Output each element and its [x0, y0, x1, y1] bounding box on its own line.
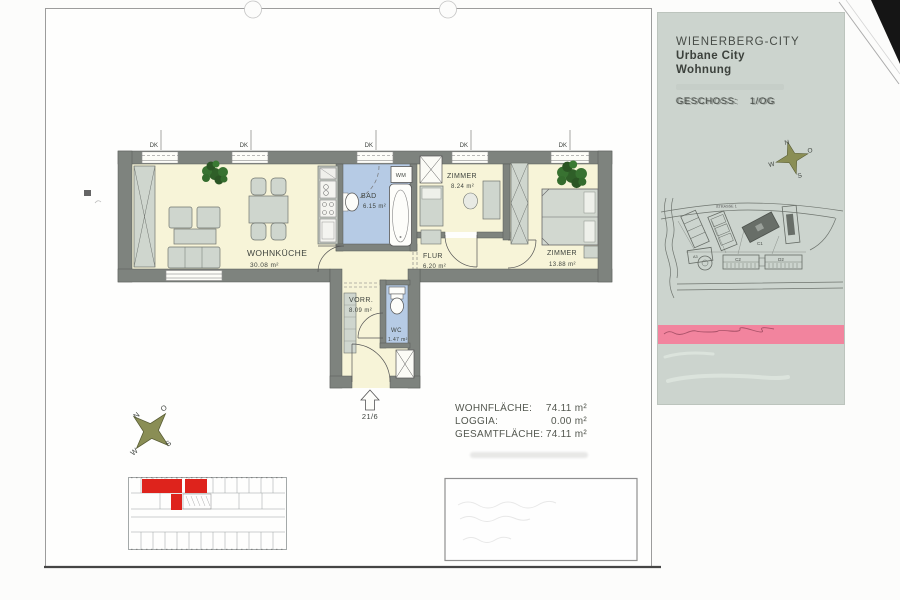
room-area-vorraum: 8.09 m²	[349, 308, 372, 314]
site-compass: N O S W	[768, 138, 813, 180]
floor-line: GESCHOSS:1/OG	[676, 96, 836, 107]
building-connector	[759, 258, 765, 266]
building-c1	[742, 212, 779, 243]
floor-plan: DK DK DK DK DK	[84, 130, 612, 421]
panel-header: WIENERBERG-CITY Urbane City Wohnung GESC…	[676, 36, 836, 107]
scan-artifact	[84, 190, 91, 196]
area-value: 74.11 m²	[546, 402, 587, 415]
room-label-wc: WC	[391, 328, 402, 334]
room-area-flur: 6.20 m²	[423, 264, 446, 270]
scan-artifact	[95, 201, 101, 203]
area-label: LOGGIA:	[455, 415, 498, 428]
area-row: WOHNFLÄCHE: 74.11 m²	[455, 402, 587, 415]
compass-w: W	[768, 161, 776, 169]
faded-print-line	[676, 84, 784, 90]
building-label-d2: D2	[778, 257, 784, 262]
area-value: 74.11 m²	[546, 428, 587, 441]
notes-box	[445, 479, 637, 561]
building-b1	[708, 211, 737, 251]
room-area-zimmer1: 8.24 m²	[451, 184, 474, 190]
corner-fold	[839, 0, 900, 84]
ghost-marks	[665, 353, 788, 381]
entrance-arrow-icon	[361, 390, 379, 410]
room-area-wc: 1.47 m²	[388, 337, 408, 343]
room-label-vorraum: VORR.	[349, 297, 373, 304]
window-label: DK	[559, 143, 567, 149]
building-a3	[687, 247, 713, 270]
project-subtitle-1: Urbane City	[676, 50, 836, 62]
building-a1	[681, 210, 709, 248]
area-row: LOGGIA: 0.00 m²	[455, 415, 587, 428]
building-c2	[723, 255, 759, 269]
faded-print-line	[470, 452, 588, 458]
area-row: GESAMTFLÄCHE: 74.11 m²	[455, 428, 587, 441]
room-area-bad: 6.15 m²	[363, 204, 386, 210]
window-label: DK	[365, 143, 373, 149]
street-label: STRASSE 1	[716, 204, 737, 209]
building-d1	[782, 205, 800, 243]
room-label-zimmer2: ZIMMER	[547, 250, 577, 257]
window-label: DK	[240, 143, 248, 149]
key-plan	[129, 478, 287, 550]
project-subtitle-2: Wohnung	[676, 64, 836, 76]
room-label-wm: WM	[396, 173, 407, 179]
window-label: DK	[150, 143, 158, 149]
site-plan: STRASSE 1	[661, 138, 843, 298]
punch-holes	[245, 1, 457, 18]
area-label: WOHNFLÄCHE:	[455, 402, 532, 415]
compass-o: O	[807, 147, 813, 155]
compass-s: S	[164, 438, 174, 448]
floor-value: 1/OG	[750, 96, 775, 107]
area-label: GESAMTFLÄCHE:	[455, 428, 543, 441]
building-label-c2: C2	[735, 257, 741, 262]
room-area-zimmer2: 13.88 m²	[549, 262, 576, 268]
compass-n: N	[784, 139, 790, 147]
room-label-wohnkueche: WOHNKÜCHE	[247, 248, 307, 258]
floor-label: GESCHOSS:	[676, 96, 738, 107]
compass-o: O	[159, 403, 169, 414]
room-area-wohnkueche: 30.08 m²	[250, 262, 279, 269]
project-title: WIENERBERG-CITY	[676, 36, 836, 48]
window-label: DK	[460, 143, 468, 149]
room-label-flur: FLUR	[423, 253, 443, 260]
compass-s: S	[797, 172, 803, 180]
entrance-number: 21/6	[362, 412, 378, 421]
scanned-floorplan-page: { "panel": { "title": "WIENERBERG-CITY",…	[0, 0, 900, 600]
pink-highlight	[658, 325, 844, 344]
room-label-bad: BAD	[361, 193, 377, 200]
kitchen-counter	[318, 166, 338, 244]
compass-rose: N O W S	[119, 399, 182, 462]
area-value: 0.00 m²	[551, 415, 587, 428]
building-label-c1: C1	[757, 241, 763, 246]
room-label-zimmer1: ZIMMER	[447, 173, 477, 180]
area-summary-table: WOHNFLÄCHE: 74.11 m² LOGGIA: 0.00 m² GES…	[455, 402, 587, 441]
building-label-a3: A3	[693, 255, 698, 259]
